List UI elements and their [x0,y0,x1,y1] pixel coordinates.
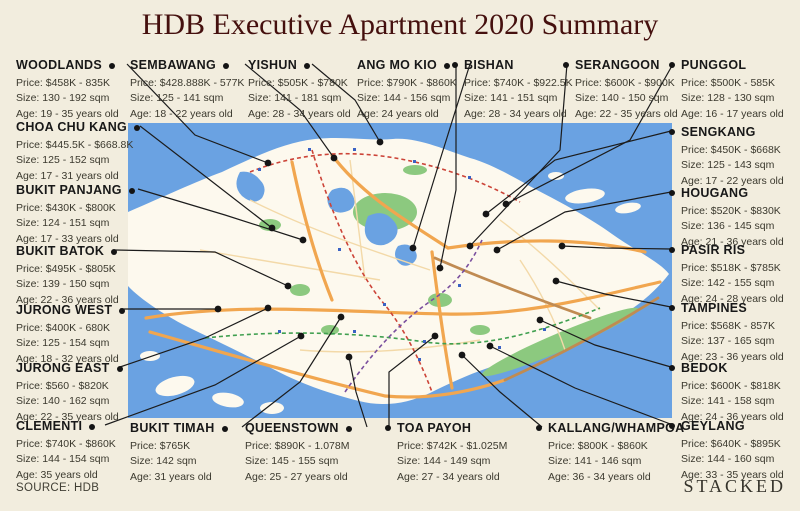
town-label-bukit-batok: BUKIT BATOK Price: $495K - $805K Size: 1… [16,244,119,307]
bullet-dot-icon [109,63,115,69]
town-price: Price: $790K - $860K [357,76,457,90]
bullet-dot-icon [385,425,391,431]
town-price: Price: $568K - 857K [681,319,784,333]
town-size: Size: 142 - 155 sqm [681,276,784,290]
town-age: Age: 33 - 35 years old [681,468,784,482]
town-label-jurong-west: JURONG WEST Price: $400K - 680K Size: 12… [16,303,125,366]
town-age: Age: 35 years old [16,468,116,482]
town-name: WOODLANDS [16,58,119,72]
town-age: Age: 31 years old [130,470,228,484]
town-label-bishan: BISHAN Price: $740K - $922.5K Size: 141 … [464,58,573,121]
bullet-dot-icon [536,425,542,431]
town-size: Size: 125 - 143 sqm [681,158,784,172]
town-price: Price: $458K - 835K [16,76,119,90]
town-name: BISHAN [464,58,573,72]
town-label-bukit-timah: BUKIT TIMAH Price: $765K Size: 142 sqm A… [130,421,228,484]
town-size: Size: 140 - 150 sqm [575,91,678,105]
town-age: Age: 17 - 31 years old [16,169,140,183]
town-name: BUKIT TIMAH [130,421,228,435]
town-price: Price: $505K - $780K [248,76,351,90]
town-name: CLEMENTI [16,419,116,433]
town-name: PUNGGOL [681,58,784,72]
town-label-pasir-ris: PASIR RIS Price: $518K - $785K Size: 142… [681,243,784,306]
town-age: Age: 25 - 27 years old [245,470,352,484]
town-name: SEMBAWANG [130,58,244,72]
town-size: Size: 136 - 145 sqm [681,219,784,233]
bullet-dot-icon [129,188,135,194]
town-name: BUKIT BATOK [16,244,119,258]
town-size: Size: 140 - 162 sqm [16,394,123,408]
town-size: Size: 125 - 154 sqm [16,336,125,350]
town-name: ANG MO KIO [357,58,457,72]
town-age: Age: 16 - 17 years old [681,107,784,121]
town-name: JURONG WEST [16,303,125,317]
town-size: Size: 125 - 152 sqm [16,153,140,167]
bullet-dot-icon [669,305,675,311]
town-age: Age: 22 - 35 years old [575,107,678,121]
town-price: Price: $500K - 585K [681,76,784,90]
town-name: SENGKANG [681,125,784,139]
bullet-dot-icon [304,63,310,69]
town-size: Size: 145 - 155 sqm [245,454,352,468]
town-size: Size: 137 - 165 sqm [681,334,784,348]
town-size: Size: 125 - 141 sqm [130,91,244,105]
town-age: Age: 27 - 34 years old [397,470,507,484]
bullet-dot-icon [444,63,450,69]
town-price: Price: $742K - $1.025M [397,439,507,453]
town-size: Size: 130 - 192 sqm [16,91,119,105]
town-price: Price: $600K - $900K [575,76,678,90]
town-name: YISHUN [248,58,351,72]
town-label-geylang: GEYLANG Price: $640K - $895K Size: 144 -… [681,419,784,482]
town-size: Size: 124 - 151 sqm [16,216,135,230]
town-age: Age: 18 - 22 years old [130,107,244,121]
town-price: Price: $600K - $818K [681,379,784,393]
infographic-canvas: HDB Executive Apartment 2020 Summary [0,0,800,511]
bullet-dot-icon [89,424,95,430]
town-size: Size: 144 - 149 sqm [397,454,507,468]
town-size: Size: 139 - 150 sqm [16,277,119,291]
town-name: CHOA CHU KANG [16,120,140,134]
town-name: BUKIT PANJANG [16,183,135,197]
town-label-kallang-whampoa: KALLANG/WHAMPOA Price: $800K - $860K Siz… [548,421,684,484]
bullet-dot-icon [223,63,229,69]
town-price: Price: $430K - $800K [16,201,135,215]
bullet-dot-icon [222,426,228,432]
town-label-sembawang: SEMBAWANG Price: $428.888K - 577K Size: … [130,58,244,121]
town-size: Size: 142 sqm [130,454,228,468]
town-name: BEDOK [681,361,784,375]
bullet-dot-icon [452,62,458,68]
town-label-jurong-east: JURONG EAST Price: $560 - $820K Size: 14… [16,361,123,424]
town-price: Price: $520K - $830K [681,204,784,218]
town-label-hougang: HOUGANG Price: $520K - $830K Size: 136 -… [681,186,784,249]
bullet-dot-icon [117,366,123,372]
town-label-punggol: PUNGGOL Price: $500K - 585K Size: 128 - … [681,58,784,121]
town-price: Price: $495K - $805K [16,262,119,276]
town-label-ang-mo-kio: ANG MO KIO Price: $790K - $860K Size: 14… [357,58,457,121]
town-price: Price: $890K - 1.078M [245,439,352,453]
map-art [128,123,672,418]
town-name: JURONG EAST [16,361,123,375]
bullet-dot-icon [669,129,675,135]
town-price: Price: $800K - $860K [548,439,684,453]
bullet-dot-icon [669,365,675,371]
town-size: Size: 141 - 146 sqm [548,454,684,468]
town-size: Size: 144 - 160 sqm [681,452,784,466]
town-label-tampines: TAMPINES Price: $568K - 857K Size: 137 -… [681,301,784,364]
town-age: Age: 24 years old [357,107,457,121]
town-size: Size: 141 - 158 sqm [681,394,784,408]
town-age: Age: 28 - 34 years old [248,107,351,121]
town-price: Price: $765K [130,439,228,453]
bullet-dot-icon [119,308,125,314]
town-age: Age: 36 - 34 years old [548,470,684,484]
town-name: HOUGANG [681,186,784,200]
town-price: Price: $560 - $820K [16,379,123,393]
town-label-clementi: CLEMENTI Price: $740K - $860K Size: 144 … [16,419,116,482]
bullet-dot-icon [111,249,117,255]
bullet-dot-icon [669,62,675,68]
town-name: TOA PAYOH [397,421,507,435]
town-price: Price: $400K - 680K [16,321,125,335]
town-size: Size: 141 - 181 sqm [248,91,351,105]
town-price: Price: $428.888K - 577K [130,76,244,90]
town-size: Size: 144 - 156 sqm [357,91,457,105]
town-price: Price: $518K - $785K [681,261,784,275]
town-size: Size: 128 - 130 sqm [681,91,784,105]
town-name: PASIR RIS [681,243,784,257]
town-name: KALLANG/WHAMPOA [548,421,684,435]
town-label-bukit-panjang: BUKIT PANJANG Price: $430K - $800K Size:… [16,183,135,246]
town-label-choa-chu-kang: CHOA CHU KANG Price: $445.5K - $668.8K S… [16,120,140,183]
town-price: Price: $740K - $860K [16,437,116,451]
town-label-yishun: YISHUN Price: $505K - $780K Size: 141 - … [248,58,351,121]
town-age: Age: 28 - 34 years old [464,107,573,121]
town-price: Price: $740K - $922.5K [464,76,573,90]
town-name: TAMPINES [681,301,784,315]
town-price: Price: $640K - $895K [681,437,784,451]
town-label-woodlands: WOODLANDS Price: $458K - 835K Size: 130 … [16,58,119,121]
bullet-dot-icon [134,125,140,131]
town-price: Price: $450K - $668K [681,143,784,157]
town-label-serangoon: SERANGOON Price: $600K - $900K Size: 140… [575,58,678,121]
town-name: SERANGOON [575,58,678,72]
bullet-dot-icon [669,190,675,196]
town-size: Size: 141 - 151 sqm [464,91,573,105]
town-name: GEYLANG [681,419,784,433]
town-label-bedok: BEDOK Price: $600K - $818K Size: 141 - 1… [681,361,784,424]
town-price: Price: $445.5K - $668.8K [16,138,140,152]
bullet-dot-icon [346,426,352,432]
town-label-queenstown: QUEENSTOWN Price: $890K - 1.078M Size: 1… [245,421,352,484]
bullet-dot-icon [563,62,569,68]
town-label-sengkang: SENGKANG Price: $450K - $668K Size: 125 … [681,125,784,188]
source-credit: SOURCE: HDB [16,482,99,494]
town-name: QUEENSTOWN [245,421,352,435]
bullet-dot-icon [669,247,675,253]
town-label-toa-payoh: TOA PAYOH Price: $742K - $1.025M Size: 1… [397,421,507,484]
town-size: Size: 144 - 154 sqm [16,452,116,466]
